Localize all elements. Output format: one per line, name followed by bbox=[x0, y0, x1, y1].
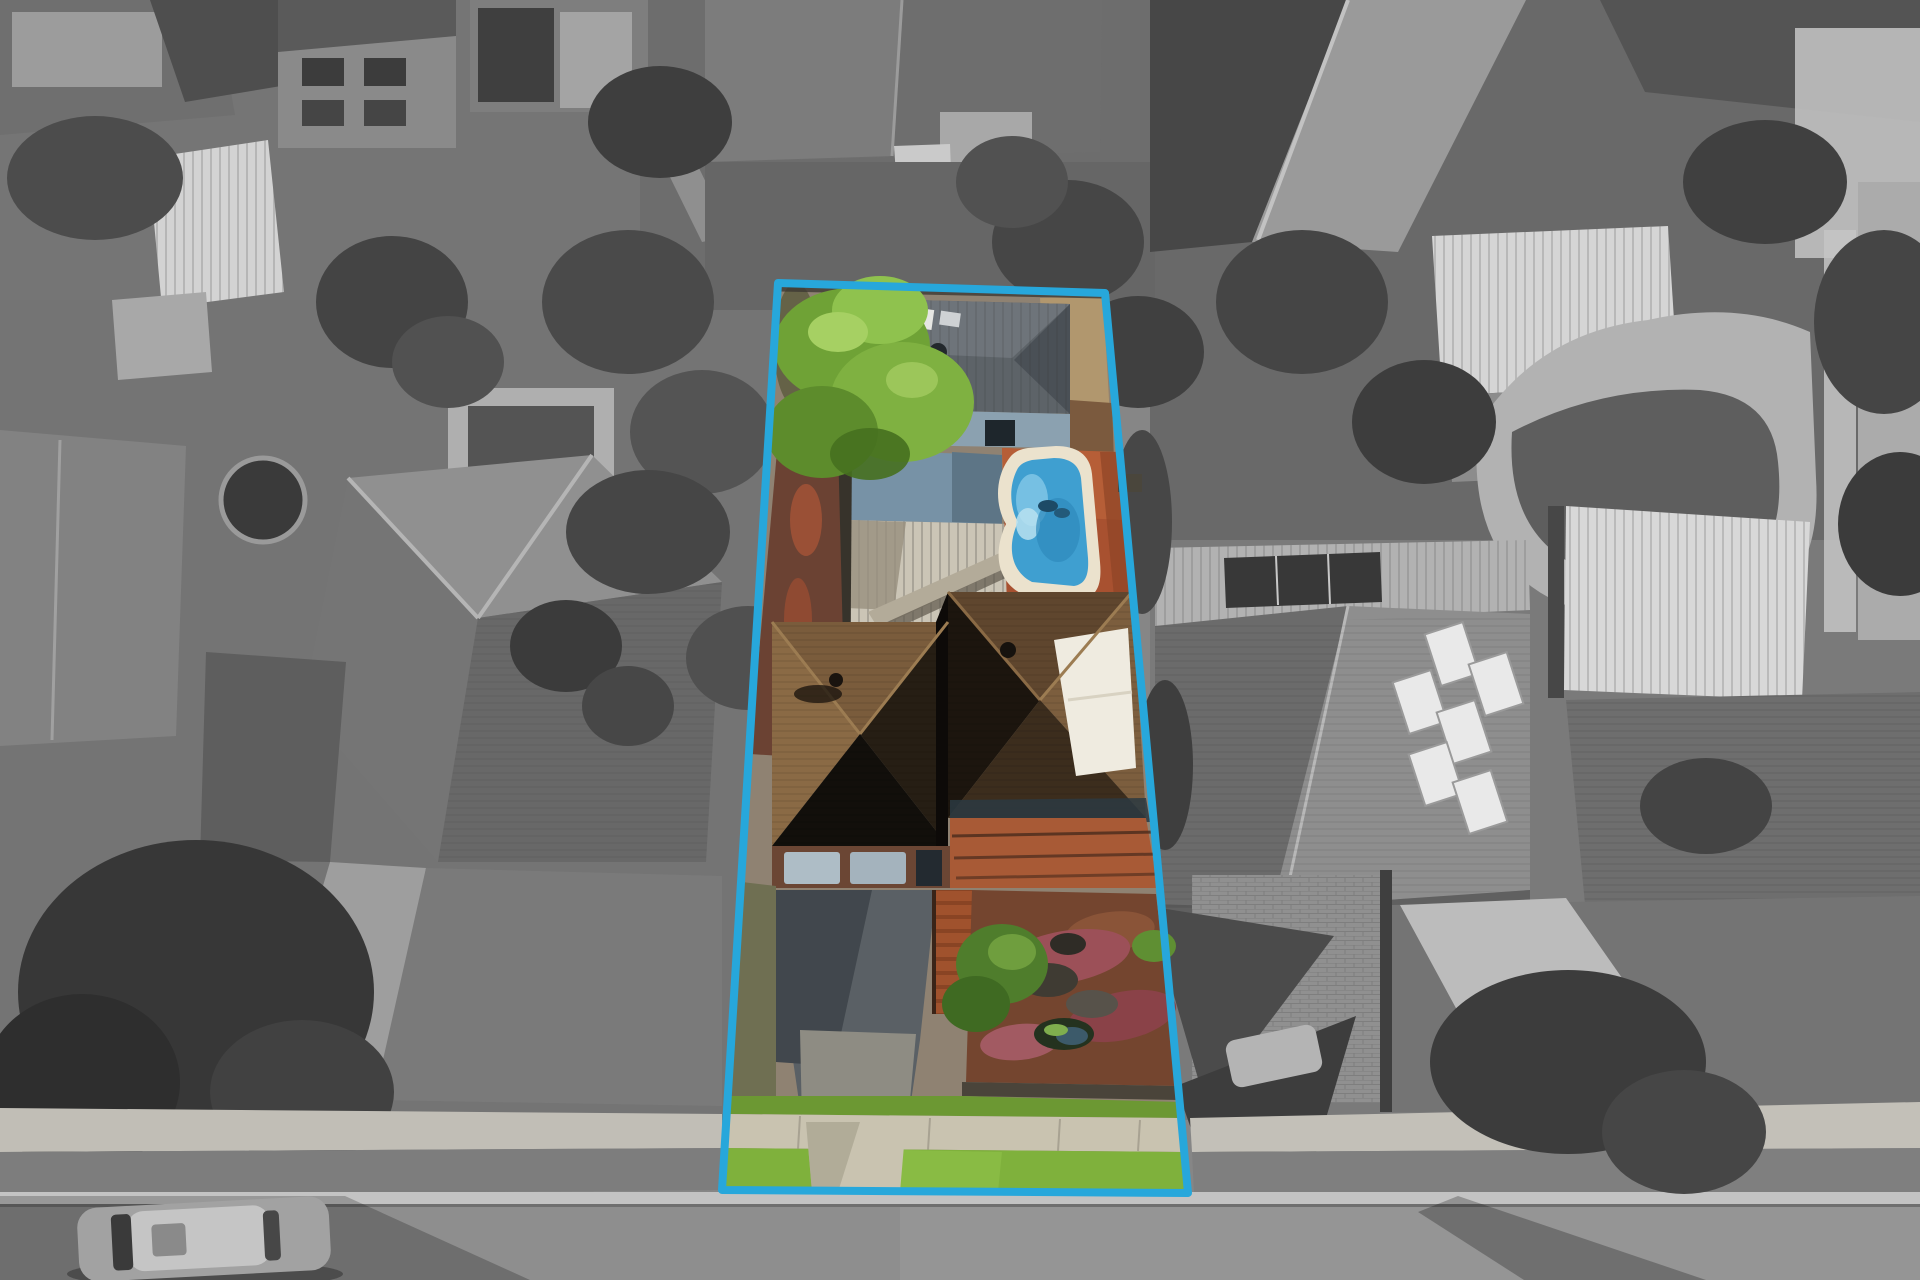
property-footpath bbox=[725, 1114, 1183, 1152]
verge-mow-streak bbox=[898, 1150, 1002, 1192]
garden-rock-2 bbox=[1066, 990, 1118, 1018]
garden-rock-3 bbox=[1050, 933, 1086, 955]
verge-left bbox=[0, 1148, 722, 1196]
court-fence bbox=[1380, 870, 1392, 1112]
rear-door bbox=[985, 420, 1015, 446]
far-right-white-roof-texture bbox=[1564, 506, 1810, 700]
far-right-palm bbox=[1640, 758, 1772, 854]
street-light-patch bbox=[900, 1205, 1920, 1280]
garage-door-1 bbox=[784, 852, 840, 884]
rear-skylight-2 bbox=[939, 311, 961, 328]
car-rear-window bbox=[263, 1210, 282, 1261]
gray-tree-7 bbox=[956, 136, 1068, 228]
car-roof bbox=[126, 1205, 271, 1272]
scene-root bbox=[0, 0, 1920, 1280]
tc-porch bbox=[478, 8, 554, 102]
tm-house-roof-left bbox=[705, 0, 902, 162]
left-mid-front-yard bbox=[374, 868, 722, 1106]
tl-window-4 bbox=[364, 100, 406, 126]
pool-toy-1 bbox=[1038, 500, 1058, 512]
far-right-roof-edge bbox=[1548, 506, 1564, 698]
roof-vent-shadow bbox=[794, 685, 842, 703]
green-tree-dark bbox=[830, 428, 910, 480]
aerial-property-photo bbox=[0, 0, 1920, 1280]
front-right-tree-2 bbox=[1602, 1070, 1766, 1194]
gray-palm-2 bbox=[582, 666, 674, 746]
tl-window-2 bbox=[364, 58, 406, 86]
far-left-roof bbox=[0, 430, 186, 746]
gray-tree-4 bbox=[588, 66, 732, 178]
verge-right bbox=[1192, 1148, 1920, 1198]
gray-tree-15 bbox=[566, 470, 730, 594]
gray-tree-3 bbox=[392, 316, 504, 408]
footpath-left bbox=[0, 1108, 722, 1152]
solar-array-dark bbox=[1224, 552, 1382, 608]
patio-roof-blue-dark bbox=[952, 452, 1002, 524]
car-windshield bbox=[111, 1214, 134, 1271]
gray-tree-9 bbox=[1352, 360, 1496, 484]
tl-flats-balcony bbox=[12, 12, 162, 87]
garden-lilypad bbox=[1044, 1024, 1068, 1036]
front-door bbox=[916, 850, 942, 886]
car-sunroof bbox=[151, 1223, 187, 1257]
roof-vent-2 bbox=[1000, 642, 1016, 658]
garden-shrub-highlight bbox=[988, 934, 1036, 970]
gray-tree-8 bbox=[1216, 230, 1388, 374]
aerial-photo-svg bbox=[0, 0, 1920, 1280]
pool-toy-2 bbox=[1054, 508, 1070, 518]
gray-tree-13 bbox=[542, 230, 714, 374]
garden-shrub-2 bbox=[942, 976, 1010, 1032]
roof-vent-1 bbox=[829, 673, 843, 687]
green-tree-highlight-2 bbox=[886, 362, 938, 398]
shed-small bbox=[112, 292, 212, 380]
gray-tree-10 bbox=[1683, 120, 1847, 244]
gray-tree-1 bbox=[7, 116, 183, 240]
left-mid-court bbox=[200, 652, 346, 862]
tl-window-3 bbox=[302, 100, 344, 126]
garage-door-2 bbox=[850, 852, 906, 884]
tl-window-1 bbox=[302, 58, 344, 86]
mulch-red-1 bbox=[790, 484, 822, 556]
trampoline bbox=[221, 458, 305, 542]
green-tree-highlight-1 bbox=[808, 312, 868, 352]
